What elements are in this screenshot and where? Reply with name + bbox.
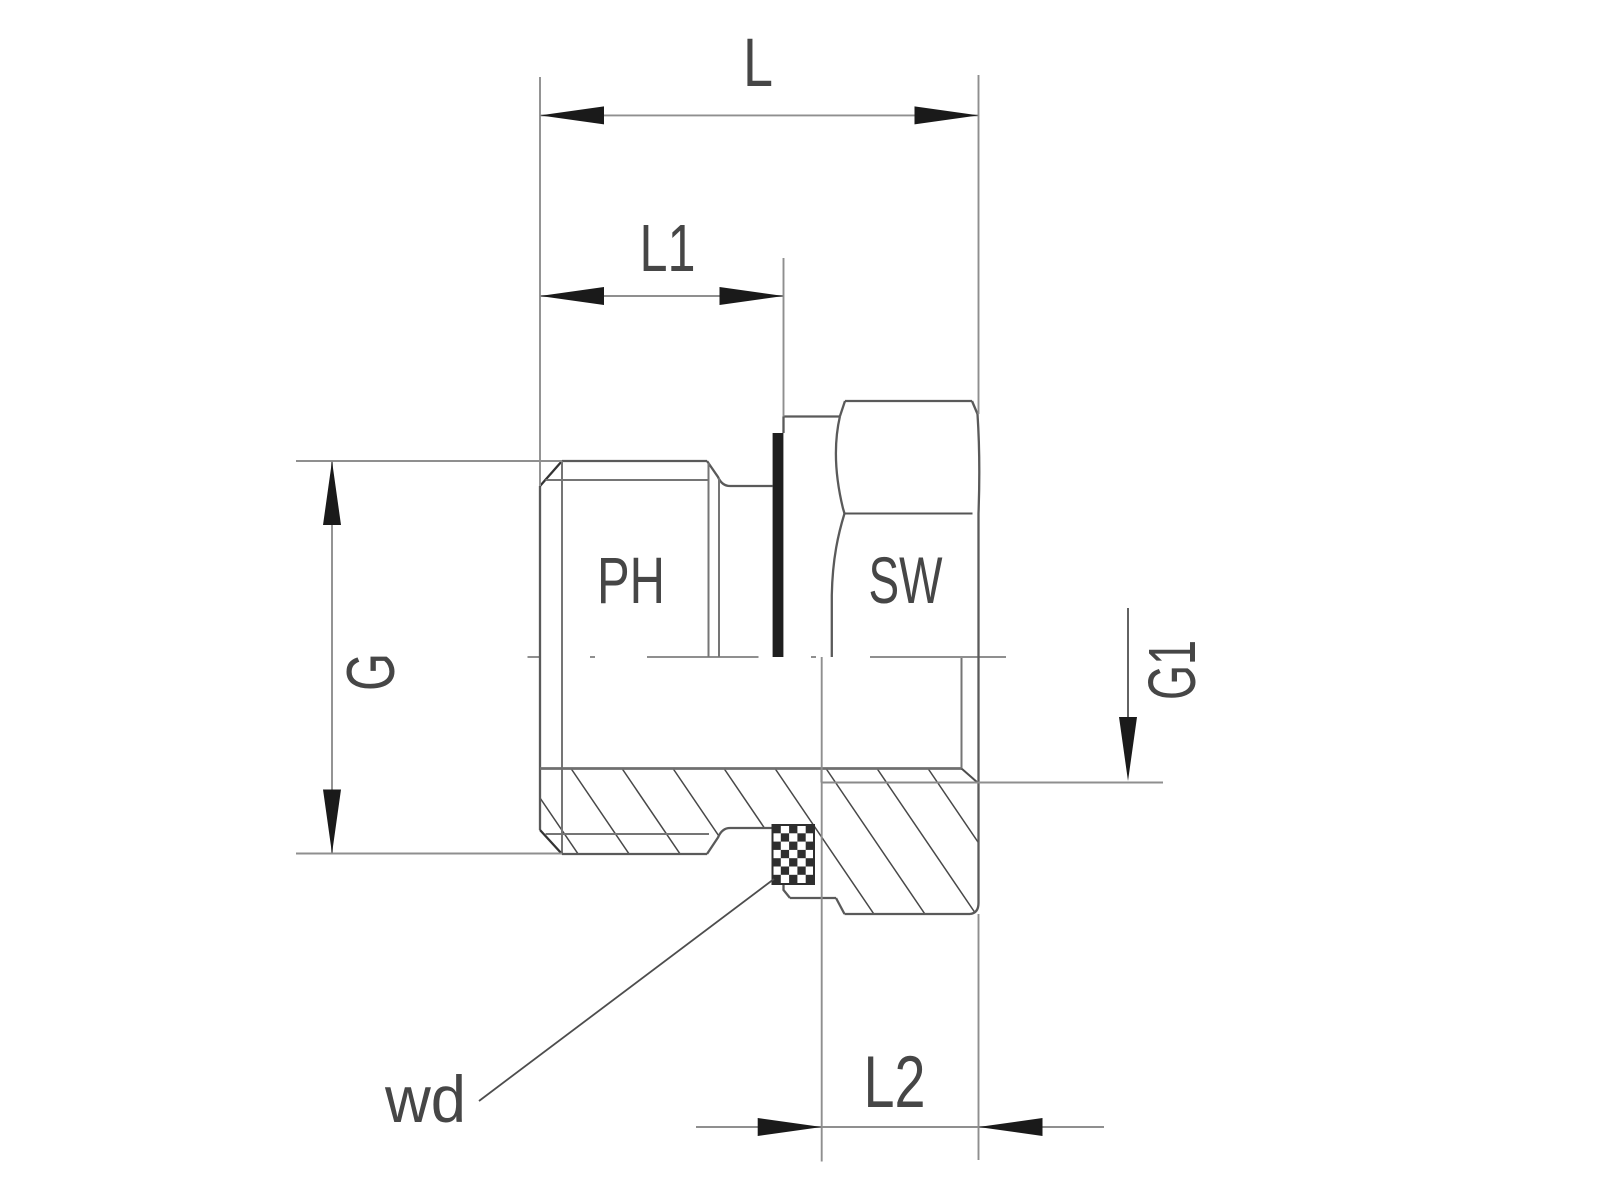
svg-text:SW: SW [869,543,943,617]
svg-text:L1: L1 [640,211,696,286]
svg-text:L2: L2 [864,1042,926,1123]
svg-text:L: L [743,24,773,101]
svg-text:G1: G1 [1135,640,1210,700]
svg-text:PH: PH [597,543,665,617]
svg-text:G: G [333,653,409,691]
svg-text:wd: wd [384,1062,466,1136]
